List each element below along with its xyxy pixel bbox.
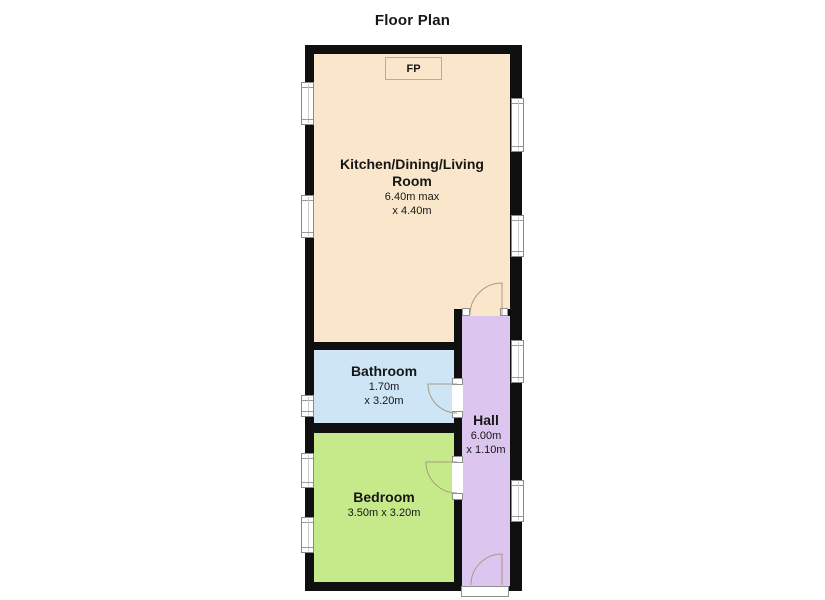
room-name: Kitchen/Dining/Living	[314, 156, 510, 173]
label-hall: Hall 6.00m x 1.10m	[455, 412, 517, 457]
room-dimensions: x 3.20m	[314, 394, 454, 408]
room-dimensions: 6.40m max	[314, 190, 510, 204]
room-dimensions: 1.70m	[314, 380, 454, 394]
door-jamb	[462, 308, 470, 316]
window	[511, 215, 524, 257]
wall-bathroom-bedroom	[305, 423, 462, 433]
window	[301, 395, 314, 417]
window	[511, 480, 524, 522]
wall-kitchen-bathroom	[305, 342, 462, 350]
room-name: Hall	[455, 412, 517, 429]
floor-plan-canvas: Floor Plan FP Kitchen/Dining/Living Ro	[0, 0, 825, 600]
door-jamb	[500, 308, 508, 316]
fireplace: FP	[385, 57, 442, 80]
room-dimensions: x 1.10m	[455, 443, 517, 457]
page-title: Floor Plan	[0, 12, 825, 29]
window	[301, 453, 314, 488]
door-jamb	[452, 456, 463, 463]
label-kitchen: Kitchen/Dining/Living Room 6.40m max x 4…	[314, 156, 510, 218]
fireplace-label: FP	[406, 63, 420, 75]
label-bedroom: Bedroom 3.50m x 3.20m	[314, 489, 454, 520]
entrance-door-threshold	[461, 586, 509, 597]
window	[511, 340, 524, 383]
label-bathroom: Bathroom 1.70m x 3.20m	[314, 363, 454, 408]
room-name: Bathroom	[314, 363, 454, 380]
room-dimensions: 3.50m x 3.20m	[314, 506, 454, 520]
room-dimensions: 6.00m	[455, 429, 517, 443]
window	[301, 517, 314, 553]
room-name: Bedroom	[314, 489, 454, 506]
window	[301, 82, 314, 125]
room-dimensions: x 4.40m	[314, 204, 510, 218]
window	[301, 195, 314, 238]
window	[511, 98, 524, 152]
room-name: Room	[314, 173, 510, 190]
